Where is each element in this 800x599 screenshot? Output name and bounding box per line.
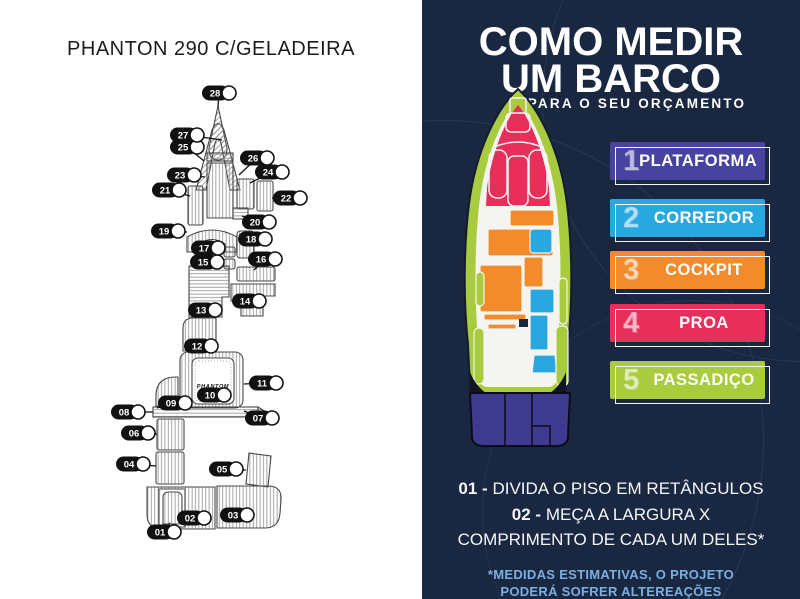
callout-05: 05 (209, 462, 246, 477)
infographic-page: PHANTON 290 C/GELADEIRA (0, 0, 800, 599)
pad-24 (237, 179, 254, 209)
legend-item-cockpit: 3 COCKPIT (610, 251, 765, 289)
deck-pad-diagram-panel: PHANTON 290 C/GELADEIRA (0, 0, 422, 599)
svg-text:12: 12 (192, 341, 203, 352)
legend-item-corredor: 2 CORREDOR (610, 199, 765, 237)
how-to-measure-panel: COMO MEDIR UM BARCO PARA O SEU ORÇAMENTO (422, 0, 800, 599)
step-2-text: MEÇA A LARGURA X COMPRIMENTO DE CADA UM … (458, 505, 765, 550)
svg-text:25: 25 (178, 142, 189, 153)
pad-23-top (207, 153, 233, 161)
callout-25: 25 (170, 140, 204, 162)
pad-22 (257, 181, 273, 211)
svg-text:17: 17 (199, 243, 210, 254)
svg-text:16: 16 (256, 254, 267, 265)
legend-label: PASSADIÇO (651, 371, 765, 390)
callout-24: 24 (250, 165, 289, 184)
callout-23: 23 (167, 168, 205, 183)
svg-text:13: 13 (196, 305, 207, 316)
pad-23 (207, 163, 233, 218)
legend-number: 4 (610, 307, 651, 340)
legend-label: PROA (651, 314, 765, 333)
legend-item-passadico: 5 PASSADIÇO (610, 361, 765, 399)
legend-label: COCKPIT (651, 261, 765, 280)
instructions: 01 - DIVIDA O PISO EM RETÂNGULOS 02 - ME… (422, 476, 800, 553)
svg-text:04: 04 (124, 459, 135, 470)
svg-text:15: 15 (198, 257, 209, 268)
legend-number: 2 (610, 202, 651, 235)
callout-28: 28 (202, 86, 236, 108)
svg-text:01: 01 (155, 527, 166, 538)
svg-text:08: 08 (119, 407, 130, 418)
legend-item-proa: 4 PROA (610, 304, 765, 342)
footnote: *MEDIDAS ESTIMATIVAS, O PROJETO PODERÁ S… (422, 567, 800, 599)
callout-20: 20 (242, 215, 276, 230)
svg-text:28: 28 (210, 88, 221, 99)
legend-number: 3 (610, 254, 651, 287)
pad-05 (246, 453, 271, 487)
pad-16 (237, 267, 275, 281)
title-line-1: COMO MEDIR (422, 24, 800, 61)
legend-number: 1 (610, 145, 639, 178)
step-2: 02 - MEÇA A LARGURA X COMPRIMENTO DE CAD… (446, 502, 776, 553)
legend-number: 5 (610, 364, 651, 397)
callout-12: 12 (184, 339, 218, 354)
svg-text:21: 21 (160, 185, 171, 196)
footnote-line-1: *MEDIDAS ESTIMATIVAS, O PROJETO (422, 567, 800, 584)
callout-21: 21 (152, 183, 190, 198)
svg-text:06: 06 (129, 428, 140, 439)
legend-item-plataforma: 1 PLATAFORMA (610, 142, 765, 180)
step-1-text: DIVIDA O PISO EM RETÂNGULOS (492, 479, 763, 498)
callout-03: 03 (220, 508, 254, 523)
svg-text:19: 19 (159, 226, 170, 237)
callout-15: 15 (190, 255, 224, 270)
callout-11: 11 (244, 376, 283, 391)
boat-illustration (458, 88, 582, 456)
step-1-number: 01 - (458, 479, 487, 498)
svg-text:20: 20 (250, 217, 261, 228)
svg-text:11: 11 (257, 378, 268, 389)
legend-label: PLATAFORMA (639, 152, 765, 171)
zone-plataforma (470, 393, 570, 446)
svg-text:03: 03 (228, 510, 239, 521)
svg-text:07: 07 (253, 413, 264, 424)
callout-01: 01 (147, 523, 181, 540)
callout-14: 14 (232, 294, 266, 309)
step-1: 01 - DIVIDA O PISO EM RETÂNGULOS (422, 476, 800, 502)
svg-text:09: 09 (166, 398, 177, 409)
deck-pad-diagram: PHANTOM 01020304050607080910111213141516… (0, 0, 422, 599)
svg-text:10: 10 (205, 390, 216, 401)
footnote-line-2: PODERÁ SOFRER ALTEREAÇÕES (422, 584, 800, 599)
callout-17: 17 (191, 241, 225, 256)
cockpit-hatch-detail (519, 319, 528, 327)
callout-09: 09 (157, 396, 192, 411)
callout-22: 22 (272, 191, 307, 206)
svg-text:27: 27 (178, 130, 189, 141)
svg-text:26: 26 (248, 153, 259, 164)
callout-02: 02 (177, 511, 211, 526)
pad-21 (188, 186, 203, 225)
svg-text:05: 05 (217, 464, 228, 475)
pad-06 (157, 419, 184, 450)
pad-04 (156, 452, 184, 484)
svg-text:22: 22 (281, 193, 292, 204)
callout-13: 13 (188, 303, 222, 318)
callout-19: 19 (151, 224, 187, 239)
legend-label: CORREDOR (651, 209, 765, 228)
svg-text:18: 18 (246, 234, 257, 245)
callout-18: 18 (238, 232, 272, 247)
svg-text:24: 24 (263, 167, 274, 178)
svg-text:23: 23 (175, 170, 186, 181)
callout-04: 04 (116, 457, 156, 472)
callout-08: 08 (111, 405, 153, 420)
callout-10: 10 (197, 388, 231, 403)
callout-06: 06 (121, 426, 157, 441)
callout-07: 07 (244, 411, 279, 426)
svg-text:02: 02 (185, 513, 196, 524)
step-2-number: 02 - (512, 505, 541, 524)
svg-text:14: 14 (240, 296, 251, 307)
